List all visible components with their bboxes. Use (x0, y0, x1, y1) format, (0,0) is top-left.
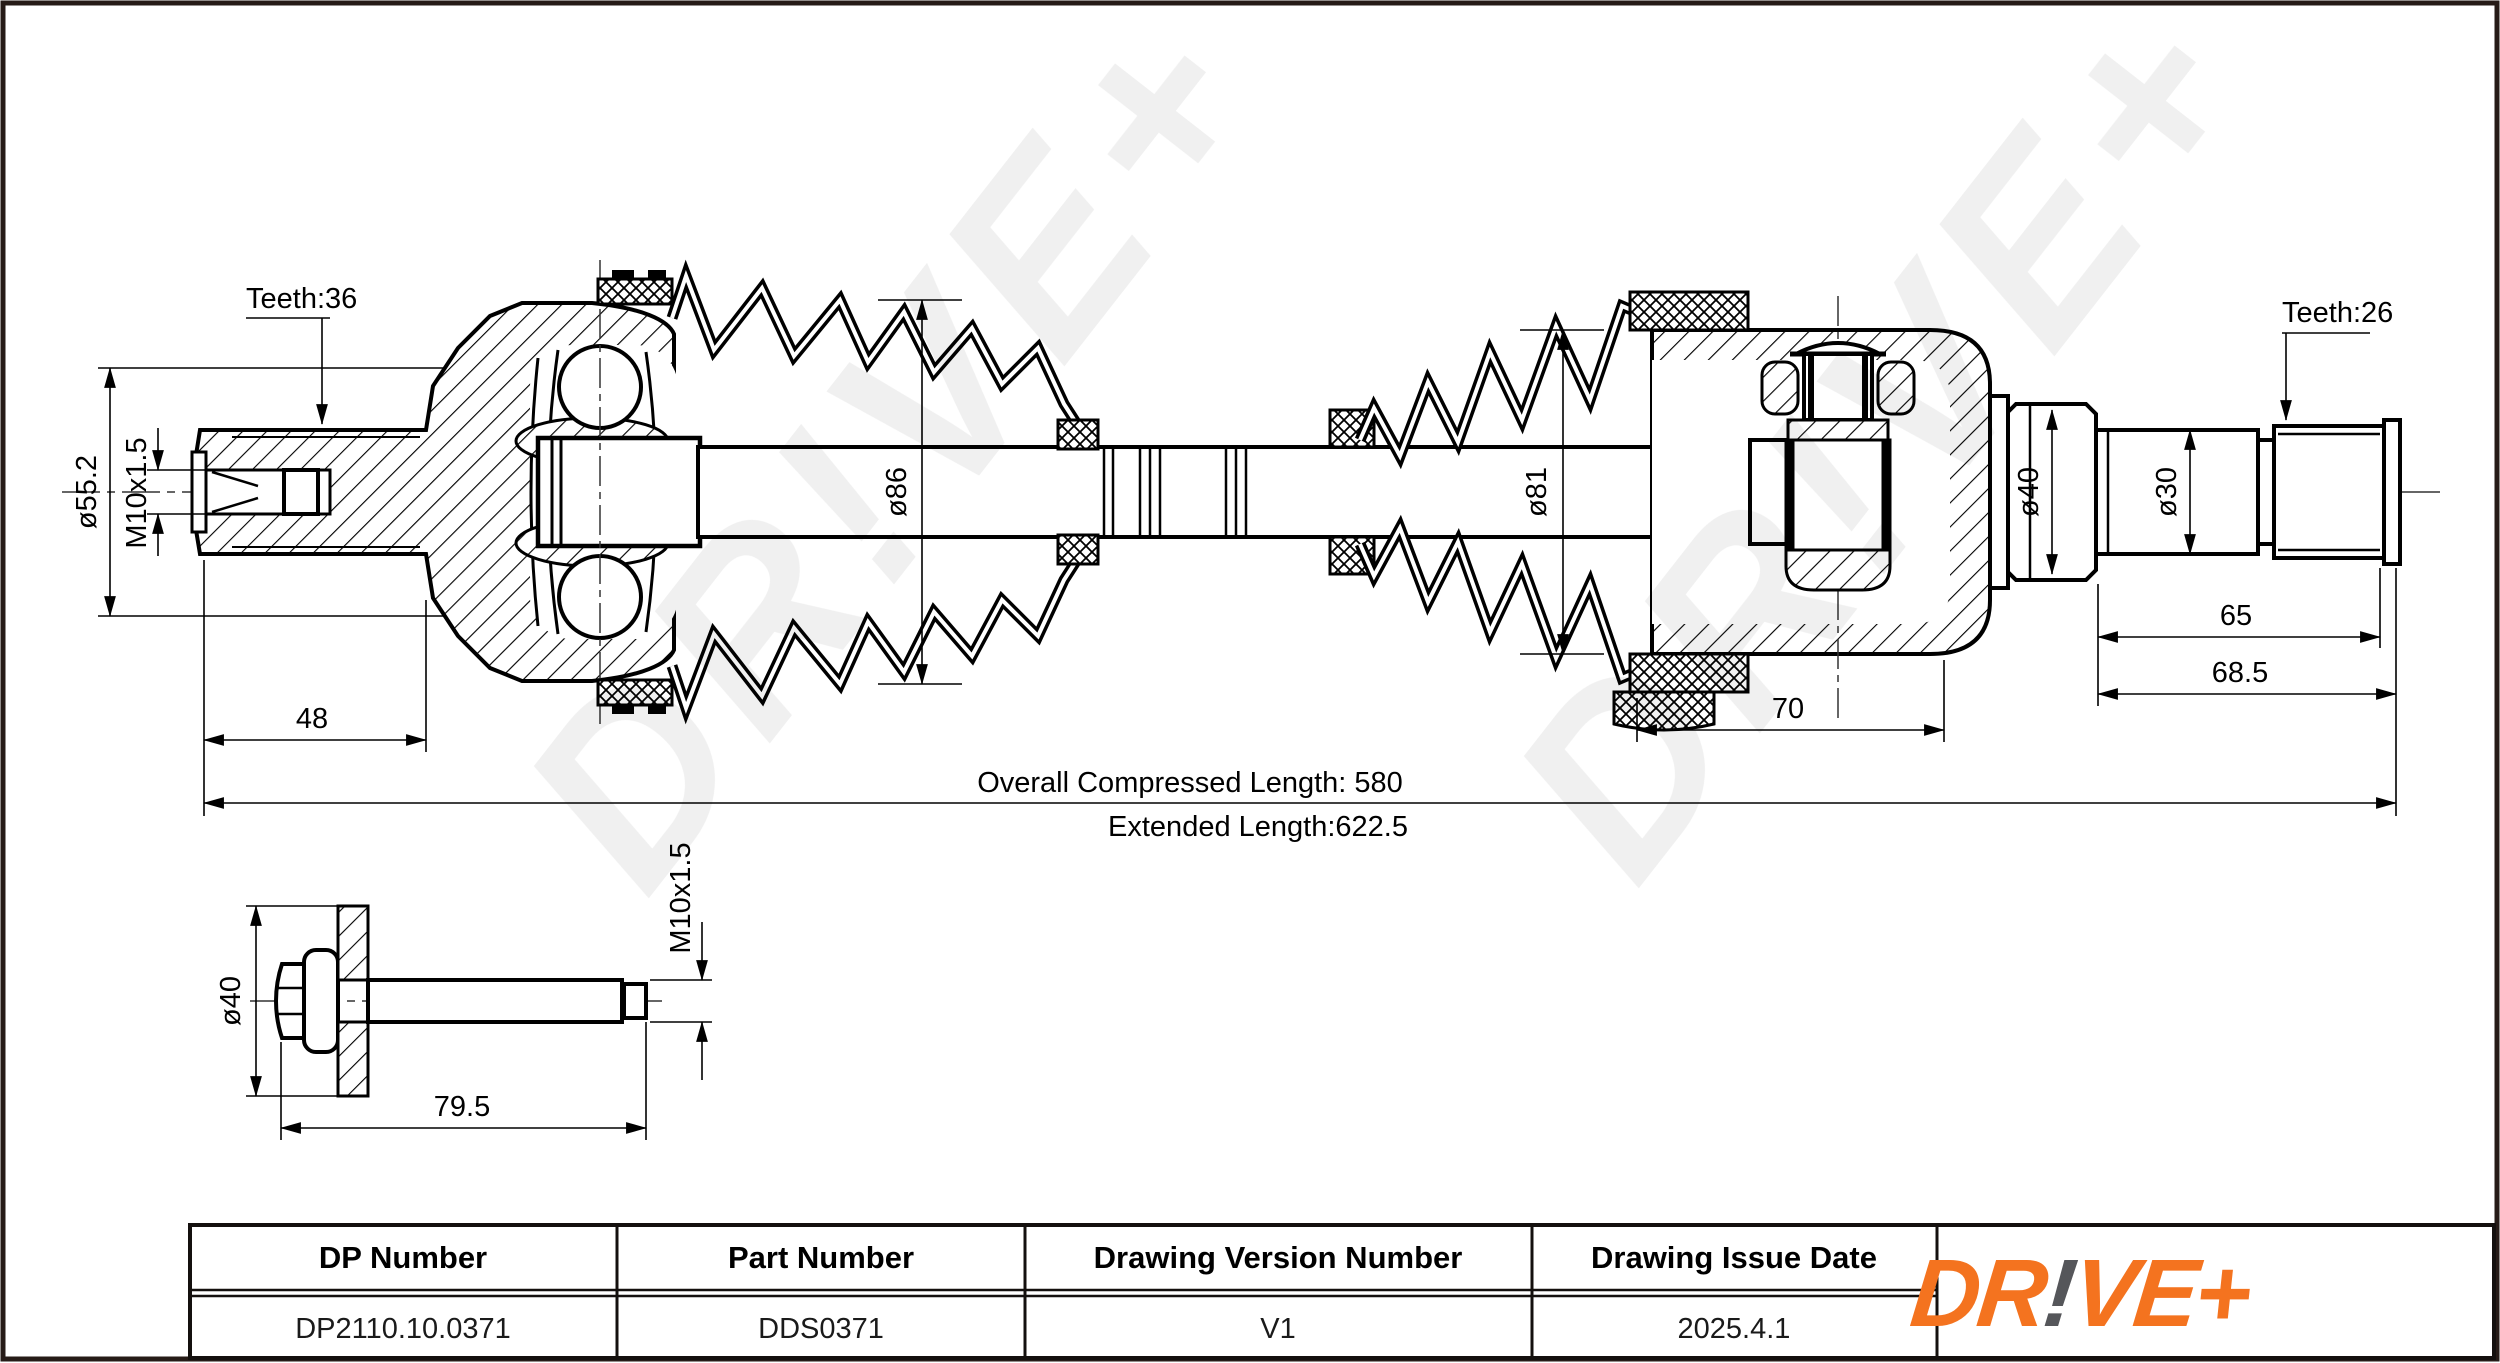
logo-ve-plus: VE+ (2068, 1240, 2256, 1347)
dim-teeth-left: Teeth:36 (246, 283, 357, 424)
logo-dr: DR (1906, 1240, 2052, 1347)
end-washer (2384, 420, 2400, 564)
label-dia-55-2: ø55.2 (71, 455, 103, 529)
table-header-dp-number: DP Number (319, 1240, 487, 1275)
label-bolt-79-5: 79.5 (434, 1091, 490, 1123)
label-68-5: 68.5 (2212, 657, 2268, 689)
label-48: 48 (296, 703, 328, 735)
table-value-part-number: DDS0371 (758, 1313, 884, 1345)
boot-small-clamp-bottom (1058, 535, 1098, 564)
table-value-issue-date: 2025.4.1 (1678, 1313, 1791, 1345)
label-thread-left: M10x1.5 (121, 437, 153, 548)
label-overall-compressed: Overall Compressed Length: 580 (977, 767, 1403, 799)
label-dia-30: ø30 (2151, 467, 2183, 517)
boot-big-clamp-top (1630, 292, 1748, 330)
technical-drawing-page: ø55.2 M10x1.5 Teeth:36 ø86 (0, 0, 2500, 1363)
label-teeth-right: Teeth:26 (2282, 297, 2393, 329)
label-dia-81: ø81 (1521, 467, 1553, 517)
boot-clamp-left-top (598, 279, 672, 304)
stub-end-ring (192, 452, 206, 532)
info-table: DP Number Part Number Drawing Version Nu… (190, 1225, 2494, 1358)
table-value-dp-number: DP2110.10.0371 (295, 1313, 511, 1345)
table-header-drawing-version: Drawing Version Number (1094, 1240, 1463, 1275)
table-header-part-number: Part Number (728, 1240, 914, 1275)
bolt-washer-top (338, 906, 368, 980)
brand-logo: DR!VE+ (1906, 1240, 2256, 1347)
bolt-thread-end (624, 984, 646, 1018)
spline-section (2274, 426, 2384, 558)
bolt-hex-head (276, 964, 304, 1038)
label-teeth-left: Teeth:36 (246, 283, 357, 315)
table-value-drawing-version: V1 (1260, 1313, 1295, 1345)
label-bolt-dia-40: ø40 (215, 976, 247, 1026)
dim-teeth-right: Teeth:26 (2282, 297, 2393, 420)
table-header-issue-date: Drawing Issue Date (1591, 1240, 1877, 1275)
bolt-shank (368, 980, 622, 1022)
label-65: 65 (2220, 600, 2252, 632)
dim-65: 65 (2098, 568, 2380, 648)
bolt-washer-bottom (338, 1022, 368, 1096)
stub-threaded-bore (206, 470, 330, 514)
dim-48: 48 (204, 560, 426, 752)
label-extended-length: Extended Length:622.5 (1108, 811, 1408, 843)
bolt-flange (304, 950, 338, 1052)
